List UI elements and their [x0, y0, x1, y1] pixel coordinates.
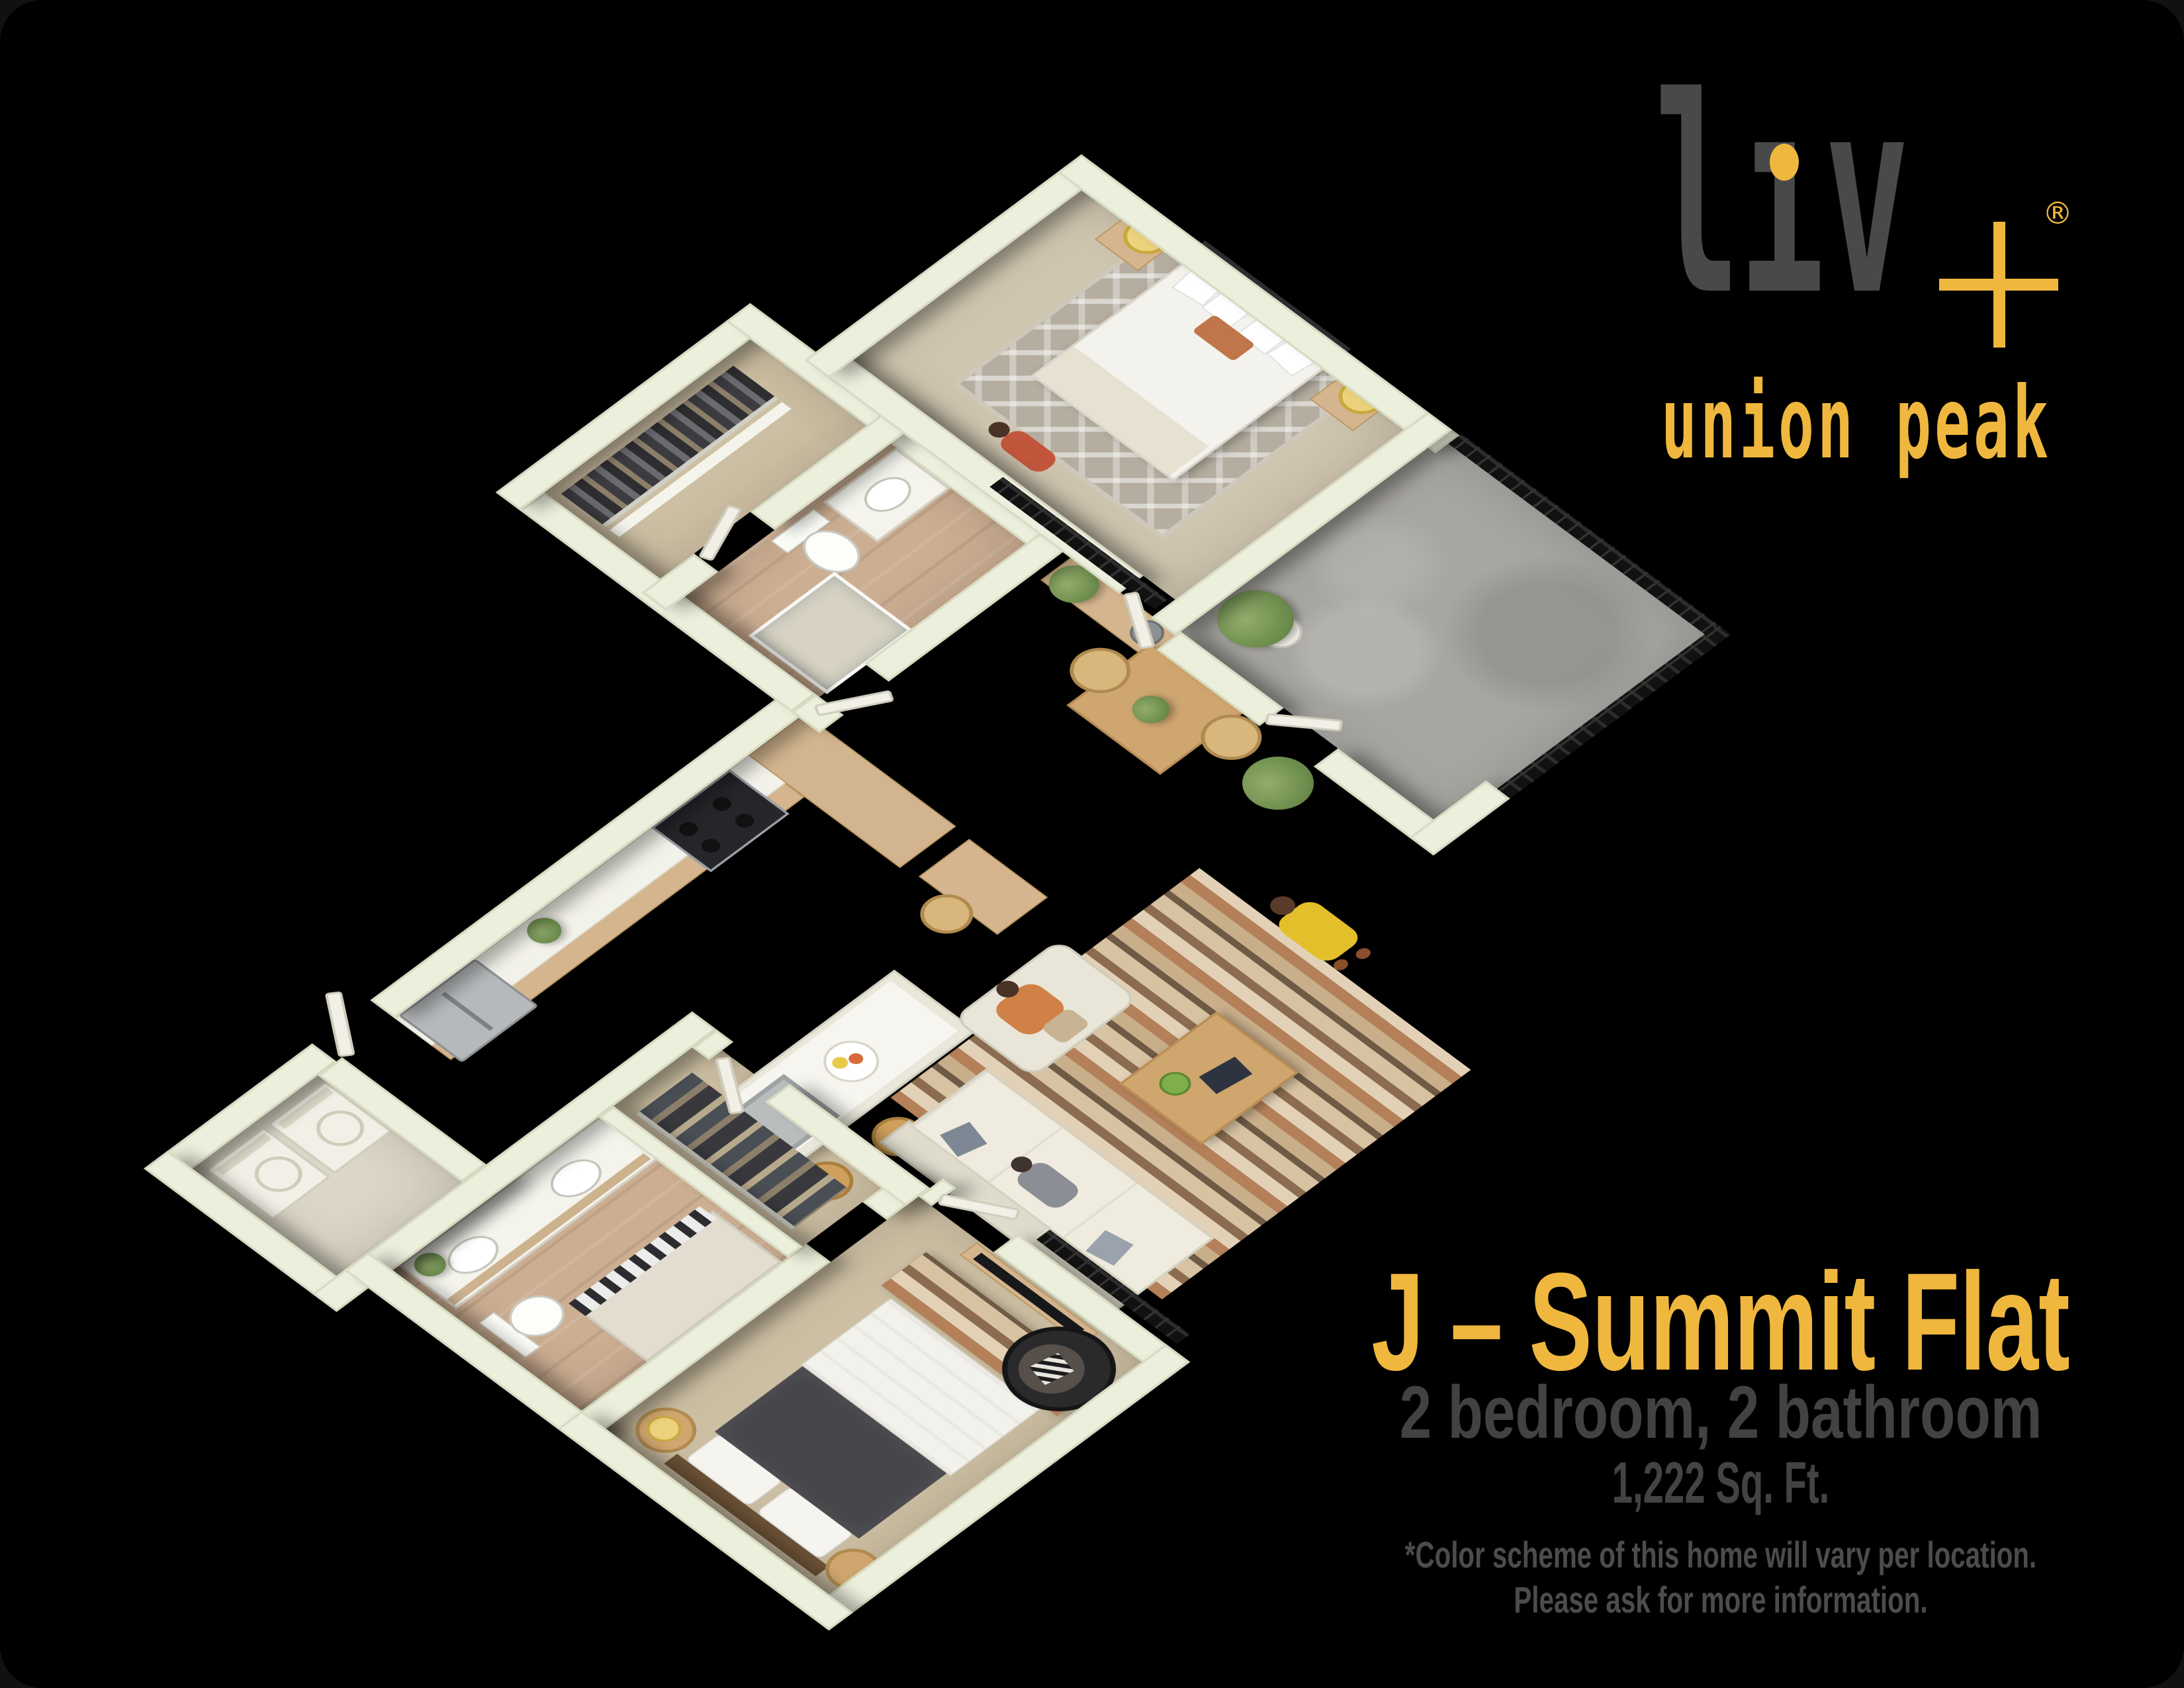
plan-label-block: J – Summit Flat 2 bedroom, 2 bathroom 1,… — [0, 0, 2184, 1688]
plan-subtitle: 2 bedroom, 2 bathroom — [1400, 1376, 2042, 1450]
disclaimer-line1: *Color scheme of this home will vary per… — [1405, 1534, 2036, 1576]
disclaimer-line2: Please ask for more information. — [1514, 1579, 1927, 1621]
plan-area: 1,222 Sq. Ft. — [1612, 1454, 1830, 1512]
flyer-canvas: lıv ® union peak J – Summit Flat 2 bedro… — [0, 0, 2184, 1688]
